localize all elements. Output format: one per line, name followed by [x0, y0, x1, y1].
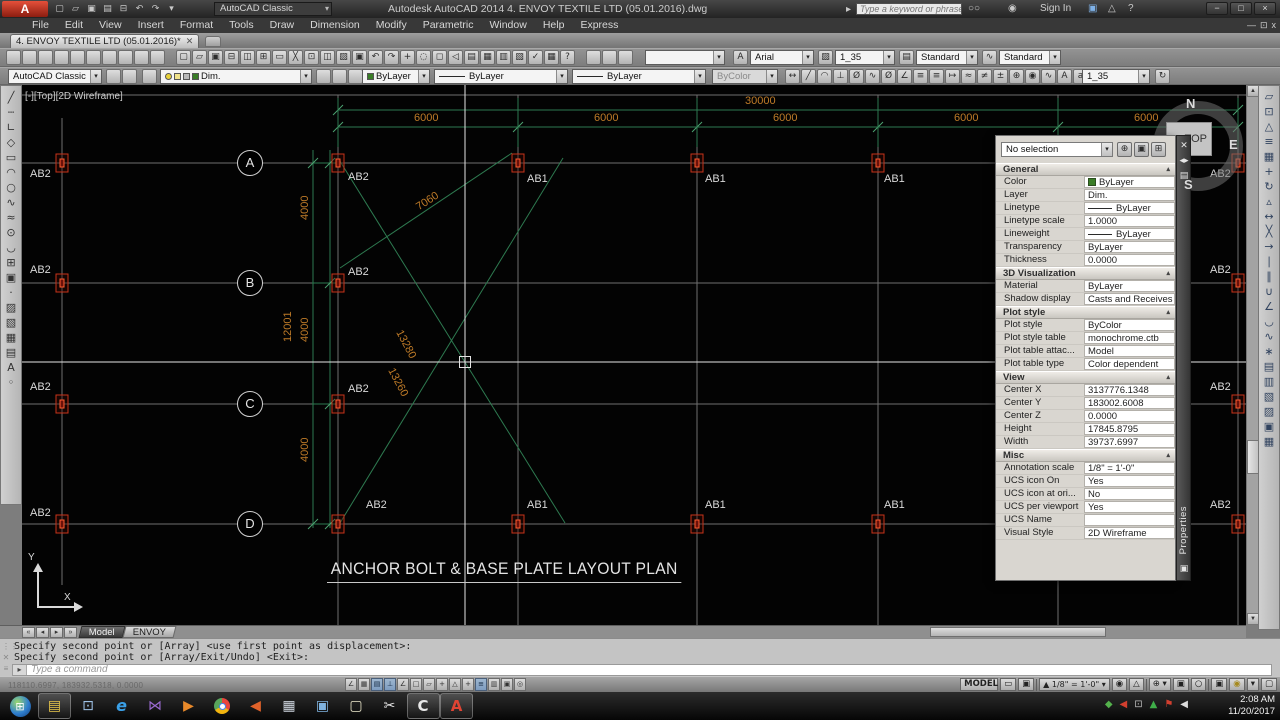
unlock-position-icon[interactable]	[150, 50, 165, 65]
workspace-combo[interactable]: AutoCAD Classic▾	[214, 2, 332, 16]
status-menu-icon[interactable]: ▾	[1247, 678, 1259, 691]
autocad-logo-icon[interactable]: A	[2, 1, 48, 17]
otrack-toggle[interactable]: +	[436, 678, 448, 691]
select-objects-icon[interactable]: ▣	[1134, 142, 1149, 157]
dim-jog-line-icon[interactable]: ∿	[982, 50, 997, 65]
trim-icon[interactable]: ╳	[1261, 224, 1277, 239]
search-input[interactable]: Type a keyword or phrase	[856, 3, 962, 15]
dim-angular-icon[interactable]: ∠	[897, 69, 912, 84]
flag-tray-icon[interactable]: ⚑	[1164, 698, 1173, 712]
property-value[interactable]: Model	[1084, 345, 1175, 357]
markup-icon[interactable]: ✓	[528, 50, 543, 65]
start-button[interactable]: ⊞	[5, 694, 35, 718]
viewport-controls[interactable]: [-][Top][2D Wireframe]	[25, 91, 123, 102]
viewport-poly-icon[interactable]	[602, 50, 617, 65]
dim-diameter-icon[interactable]: Ø	[881, 69, 896, 84]
collapse-icon[interactable]: ▴	[1166, 450, 1170, 462]
section-header-misc[interactable]: Misc▴	[996, 449, 1175, 462]
osnap-toggle[interactable]: □	[410, 678, 422, 691]
palette-autohide-icon[interactable]: ◂▸	[1178, 156, 1190, 166]
help-icon[interactable]: ?	[560, 50, 575, 65]
vertical-scroll-thumb[interactable]	[1247, 440, 1259, 474]
redo-icon[interactable]: ↷	[148, 2, 163, 16]
dwf-icon[interactable]: ▭	[272, 50, 287, 65]
section-header-view[interactable]: View▴	[996, 371, 1175, 384]
mirror-icon[interactable]: △	[1261, 119, 1277, 134]
infer-toggle[interactable]: ∠	[345, 678, 357, 691]
property-value[interactable]: Casts and Receives ...	[1084, 293, 1175, 305]
command-grip[interactable]: ⋮⋮✕≡	[2, 641, 10, 675]
undo-icon[interactable]: ↶	[368, 50, 383, 65]
menu-insert[interactable]: Insert	[130, 18, 172, 33]
compass-n[interactable]: N	[1186, 96, 1195, 111]
dyn-toggle[interactable]: +	[462, 678, 474, 691]
qnew-icon[interactable]: ▢	[52, 2, 67, 16]
circle-icon[interactable]: ○	[3, 180, 19, 195]
bolt-label: AB2	[348, 171, 369, 183]
dim-tolerance-icon[interactable]: ±	[993, 69, 1008, 84]
sign-in-link[interactable]: Sign In	[1040, 3, 1071, 14]
first-tab-icon[interactable]: «	[22, 627, 35, 638]
dim-center-mark-icon[interactable]: ⊕	[1009, 69, 1024, 84]
dim-style-combo[interactable]: 1_35▾	[1082, 69, 1150, 84]
menu-format[interactable]: Format	[172, 18, 221, 33]
update-tray-icon[interactable]: ▲	[1150, 698, 1158, 712]
quick-view-drawings-icon[interactable]: ▣	[1018, 678, 1034, 691]
sticky-notes-icon: ▢	[349, 696, 362, 716]
taskbar-calculator[interactable]: ▦	[273, 693, 306, 719]
line-icon[interactable]: ╱	[3, 90, 19, 105]
viewport-single-icon[interactable]	[586, 50, 601, 65]
preview-icon[interactable]: ◫	[240, 50, 255, 65]
property-label: Lineweight	[1002, 228, 1084, 240]
view-combo[interactable]: ▾	[645, 50, 725, 65]
hardware-acceleration-icon[interactable]: ◉	[1229, 678, 1244, 691]
property-row: LayerDim.	[996, 189, 1175, 202]
property-value[interactable]: ByLayer	[1084, 202, 1175, 214]
workspace-settings-icon[interactable]	[106, 69, 121, 84]
property-value[interactable]: ByLayer	[1084, 176, 1175, 188]
dim-vertical-label: 12001	[282, 311, 294, 342]
modify-toolbar: ▱⊡△≡▦+↻▵↔╳→∣∥∪∠◡∿∗▤▥▧▨▣▦	[1258, 85, 1280, 630]
open-icon[interactable]: ▱	[192, 50, 207, 65]
linetype-combo[interactable]: ByLayer▾	[434, 69, 568, 84]
layer-states-icon[interactable]	[348, 69, 363, 84]
maximize-button[interactable]: □	[1230, 2, 1252, 15]
dim-linear-icon[interactable]: ↔	[785, 69, 800, 84]
my-workspace-icon[interactable]	[122, 69, 137, 84]
dim-ordinate-icon[interactable]: ⊥	[833, 69, 848, 84]
erase-icon[interactable]: ▱	[1261, 89, 1277, 104]
menu-tools[interactable]: Tools	[221, 18, 262, 33]
dim-inspect-icon[interactable]: ◉	[1025, 69, 1040, 84]
sc-toggle[interactable]: ◎	[514, 678, 526, 691]
mtext-icon[interactable]: A	[733, 50, 748, 65]
save-icon[interactable]: ▣	[84, 2, 99, 16]
taskbar-chrome[interactable]	[206, 693, 239, 719]
anchor-bolt-symbol	[332, 274, 345, 293]
grid-toggle[interactable]: ▤	[371, 678, 383, 691]
property-label: Center Z	[1002, 410, 1084, 422]
save-as-icon[interactable]: ▤	[100, 2, 115, 16]
toolbar-group: ▢▱▣⊟◫⊞▭╳⊡◫▨▣↶↷+◌◻◁▤▦▥▧✓▦?	[176, 50, 575, 65]
ellipse-icon[interactable]: ⊙	[3, 225, 19, 240]
dim-update-tool-icon[interactable]	[54, 50, 69, 65]
tab-envoy[interactable]: ENVOY	[122, 626, 176, 638]
property-row: UCS icon at ori...No	[996, 488, 1175, 501]
scroll-down-icon[interactable]: ▼	[1247, 613, 1259, 625]
annotate-b-icon[interactable]	[86, 50, 101, 65]
taskbar-sticky-notes[interactable]: ▢	[340, 693, 373, 719]
mtext-icon[interactable]: A	[3, 360, 19, 375]
status-separator	[1208, 679, 1209, 691]
property-value[interactable]: 0.0000	[1084, 254, 1175, 266]
model-button[interactable]: MODEL	[960, 678, 998, 691]
layer-combo[interactable]: Dim.▾	[160, 69, 312, 84]
help-icon[interactable]: ?	[1128, 2, 1134, 16]
cad-standards-icon[interactable]	[38, 50, 53, 65]
property-value[interactable]: 0.0000	[1084, 410, 1175, 422]
lwt-toggle[interactable]: ≡	[475, 678, 487, 691]
taskbar-snipping-tool[interactable]: ✂	[373, 693, 406, 719]
dim-update-icon[interactable]: ↻	[1155, 69, 1170, 84]
send-under-icon[interactable]: ▨	[1261, 404, 1277, 419]
open-icon[interactable]: ▱	[68, 2, 83, 16]
prev-tab-icon[interactable]: ◂	[36, 627, 49, 638]
dim-continue-icon[interactable]: ↦	[945, 69, 960, 84]
anchor-bolt-symbol	[512, 154, 525, 173]
extend-icon[interactable]: →	[1261, 239, 1277, 254]
table-icon[interactable]: ▤	[3, 345, 19, 360]
menu-window[interactable]: Window	[481, 18, 534, 33]
menu-view[interactable]: View	[91, 18, 130, 33]
doc-minimize-icon[interactable]: —	[1247, 19, 1256, 32]
blend-curves-icon[interactable]: ∿	[1261, 329, 1277, 344]
annotation-autoscale-icon[interactable]: △	[1129, 678, 1144, 691]
copy-icon[interactable]: ⊡	[304, 50, 319, 65]
stretch-icon[interactable]: ↔	[1261, 209, 1277, 224]
zoom-window-icon[interactable]: ◻	[432, 50, 447, 65]
layer-translate-icon[interactable]	[22, 50, 37, 65]
taskbar-kmplayer[interactable]: ⋈	[139, 693, 172, 719]
file-tab-close-icon[interactable]: ✕	[186, 36, 194, 46]
qat-dropdown-icon[interactable]: ▾	[164, 2, 179, 16]
chamfer-icon[interactable]: ∠	[1261, 299, 1277, 314]
lock-position-icon[interactable]	[134, 50, 149, 65]
insert-block-icon[interactable]: ⊞	[3, 255, 19, 270]
annotate-a-icon[interactable]	[70, 50, 85, 65]
property-value[interactable]: Yes	[1084, 475, 1175, 487]
menu-dimension[interactable]: Dimension	[302, 18, 368, 33]
search-arrow-icon[interactable]: ▸	[846, 3, 851, 17]
rotate-icon[interactable]: ↻	[1261, 179, 1277, 194]
region-icon[interactable]: ▦	[3, 330, 19, 345]
spline-icon[interactable]: ≈	[3, 210, 19, 225]
lineweight-combo[interactable]: ByLayer▾	[572, 69, 706, 84]
table-style-combo[interactable]: Standard▾	[916, 50, 978, 65]
doc-close-icon[interactable]: x	[1272, 19, 1277, 32]
property-value[interactable]: 1.0000	[1084, 215, 1175, 227]
collapse-icon[interactable]: ▴	[1166, 307, 1170, 319]
ducs-toggle[interactable]: △	[449, 678, 461, 691]
zoom-previous-icon[interactable]: ◁	[448, 50, 463, 65]
tool-palettes-icon[interactable]: ▥	[496, 50, 511, 65]
dim-jog-line-icon[interactable]: ∿	[1041, 69, 1056, 84]
menu-file[interactable]: File	[24, 18, 57, 33]
break-icon[interactable]: ∥	[1261, 269, 1277, 284]
media-player-icon: ▶	[183, 696, 194, 716]
layer-properties-icon[interactable]	[142, 69, 157, 84]
make-object-layer-current-icon[interactable]	[316, 69, 331, 84]
add-selected-icon[interactable]: ◦	[3, 375, 19, 390]
revision-cloud-icon[interactable]: ∿	[3, 195, 19, 210]
volume-tray-icon[interactable]: ◀	[1180, 698, 1188, 712]
dim-jogged-icon[interactable]: ∿	[865, 69, 880, 84]
polar-toggle[interactable]: ∠	[397, 678, 409, 691]
isolate-objects-icon[interactable]: ○	[1191, 678, 1206, 691]
property-row: Thickness0.0000	[996, 254, 1175, 267]
taskbar-volume-app[interactable]: ◀	[239, 693, 272, 719]
polygon-icon[interactable]: ◇	[3, 135, 19, 150]
property-row: TransparencyByLayer	[996, 241, 1175, 254]
quick-view-layouts-icon[interactable]: ▭	[1000, 678, 1016, 691]
rectangle-icon[interactable]: ▭	[3, 150, 19, 165]
ucs-icon	[37, 572, 39, 608]
menu-draw[interactable]: Draw	[262, 18, 303, 33]
viewport-join-icon[interactable]	[618, 50, 633, 65]
dim-edit-icon[interactable]: A	[1057, 69, 1072, 84]
remote-viewer-icon: ⊡	[82, 696, 94, 716]
send-to-back-icon[interactable]: ▥	[1261, 374, 1277, 389]
property-value[interactable]: 3137776.1348	[1084, 384, 1175, 396]
match-properties-icon[interactable]: ▨	[336, 50, 351, 65]
property-value[interactable]: Dim.	[1084, 189, 1175, 201]
fillet-icon[interactable]: ◡	[1261, 314, 1277, 329]
arc-icon[interactable]: ◠	[3, 165, 19, 180]
property-value[interactable]	[1084, 514, 1175, 526]
collapse-icon[interactable]: ▴	[1166, 372, 1170, 384]
tpy-toggle[interactable]: ▥	[488, 678, 500, 691]
property-value[interactable]: ByLayer	[1084, 280, 1175, 292]
dim-space-icon[interactable]: ≈	[961, 69, 976, 84]
rotate-view-icon[interactable]	[102, 50, 117, 65]
dim-aligned-icon[interactable]: ╱	[801, 69, 816, 84]
block-editor-icon[interactable]: ▣	[352, 50, 367, 65]
point-icon[interactable]: ·	[3, 285, 19, 300]
collapse-icon[interactable]: ▴	[1166, 164, 1170, 176]
qp-toggle[interactable]: ▣	[501, 678, 513, 691]
property-value[interactable]: Color dependent	[1084, 358, 1175, 370]
layer-previous-icon[interactable]	[332, 69, 347, 84]
property-value[interactable]: ByLayer	[1084, 241, 1175, 253]
toolbar-group: ↻	[1155, 69, 1170, 84]
close-button[interactable]: ×	[1254, 2, 1276, 15]
toolbar-lock-icon[interactable]: ▣	[1173, 678, 1189, 691]
named-views-icon[interactable]	[118, 50, 133, 65]
property-value[interactable]: 17845.8795	[1084, 423, 1175, 435]
property-value[interactable]: ByLayer	[1084, 228, 1175, 240]
menu-edit[interactable]: Edit	[57, 18, 91, 33]
font-combo[interactable]: Arial▾	[750, 50, 814, 65]
annotation-scale-button[interactable]: ▲ 1/8" = 1'-0" ▾	[1039, 678, 1110, 691]
qnew-icon[interactable]: ▢	[176, 50, 191, 65]
table-icon[interactable]: ▤	[899, 50, 914, 65]
explode-icon[interactable]: ∗	[1261, 344, 1277, 359]
autocad-window: A ▢▱▣▤⊟↶↷▾ AutoCAD Classic▾ Autodesk Aut…	[0, 0, 1280, 720]
workspace-switcher-combo[interactable]: AutoCAD Classic▾	[8, 69, 102, 84]
property-value[interactable]: 39737.6997	[1084, 436, 1175, 448]
properties-icon[interactable]: ▤	[464, 50, 479, 65]
pan-icon[interactable]: +	[400, 50, 415, 65]
plot-icon[interactable]: ⊟	[224, 50, 239, 65]
make-block-icon[interactable]: ▣	[3, 270, 19, 285]
compass-s[interactable]: S	[1184, 177, 1193, 192]
taskbar-camtasia[interactable]: C	[407, 693, 440, 719]
menu-help[interactable]: Help	[535, 18, 573, 33]
toolbar-group	[6, 50, 165, 65]
section-header-general[interactable]: General▴	[996, 163, 1175, 176]
scroll-up-icon[interactable]: ▲	[1247, 85, 1259, 97]
construction-line-icon[interactable]: ┄	[3, 105, 19, 120]
minimize-button[interactable]: −	[1206, 2, 1228, 15]
paste-icon[interactable]: ◫	[320, 50, 335, 65]
bring-to-front-icon[interactable]: ▤	[1261, 359, 1277, 374]
property-value[interactable]: ByColor	[1084, 319, 1175, 331]
join-icon[interactable]: ∪	[1261, 284, 1277, 299]
osnap-3d-toggle[interactable]: ▱	[423, 678, 435, 691]
publish-icon[interactable]: ⊞	[256, 50, 271, 65]
array-icon[interactable]: ▦	[1261, 149, 1277, 164]
palette-title-strip: ✕ ◂▸ ▤ Properties ▣	[1176, 135, 1191, 581]
new-tab-button[interactable]	[205, 36, 221, 47]
ortho-toggle[interactable]: ⊥	[384, 678, 396, 691]
next-tab-icon[interactable]: ▸	[50, 627, 63, 638]
compass-e[interactable]: E	[1229, 137, 1238, 152]
redo-icon[interactable]: ↷	[384, 50, 399, 65]
copy-icon[interactable]: ⊡	[1261, 104, 1277, 119]
property-value[interactable]: 2D Wireframe	[1084, 527, 1175, 539]
bolt-label: AB2	[366, 499, 387, 511]
property-label: Height	[1002, 423, 1084, 435]
selection-combo[interactable]: No selection▾	[1001, 142, 1113, 157]
move-icon[interactable]: +	[1261, 164, 1277, 179]
design-center-icon[interactable]: ▦	[480, 50, 495, 65]
palette-close-icon[interactable]: ✕	[1178, 141, 1190, 151]
snap-toggle[interactable]: ▦	[358, 678, 370, 691]
zoom-realtime-icon[interactable]: ◌	[416, 50, 431, 65]
match-properties-icon[interactable]: ▨	[818, 50, 833, 65]
taskbar-internet-explorer[interactable]: e	[105, 693, 138, 719]
break-at-point-icon[interactable]: ∣	[1261, 254, 1277, 269]
property-row: LinetypeByLayer	[996, 202, 1175, 215]
display-tray-icon[interactable]: ⊡	[1134, 698, 1142, 712]
property-value[interactable]: monochrome.ctb	[1084, 332, 1175, 344]
quick-select-icon[interactable]: ⊕	[1117, 142, 1132, 157]
tab-model[interactable]: Model	[79, 626, 126, 638]
dim-break-icon[interactable]: ≠	[977, 69, 992, 84]
clean-screen-button[interactable]: ▢	[1261, 678, 1277, 691]
kmplayer-tray-icon[interactable]: ◀	[1120, 698, 1128, 712]
last-tab-icon[interactable]: »	[64, 627, 77, 638]
doc-restore-icon[interactable]: ⊡	[1260, 19, 1268, 32]
ucs-icon	[38, 606, 76, 608]
anchor-bolt-symbol	[1232, 274, 1245, 293]
standards-check-icon[interactable]	[6, 50, 21, 65]
grid-bubble-D: D	[237, 511, 263, 537]
exchange-status-icon[interactable]: ▣	[1211, 678, 1227, 691]
bring-above-icon[interactable]: ▧	[1261, 389, 1277, 404]
polyline-icon[interactable]: ∟	[3, 120, 19, 135]
menu-express[interactable]: Express	[572, 18, 626, 33]
dim-arc-length-icon[interactable]: ◠	[817, 69, 832, 84]
search-icon[interactable]: ○○	[968, 2, 980, 16]
plot-icon[interactable]: ⊟	[116, 2, 131, 16]
collapse-icon[interactable]: ▴	[1166, 268, 1170, 280]
property-row: Center Z0.0000	[996, 410, 1175, 423]
cut-icon[interactable]: ╳	[288, 50, 303, 65]
save-icon[interactable]: ▣	[208, 50, 223, 65]
scale-icon[interactable]: ▵	[1261, 194, 1277, 209]
menu-parametric[interactable]: Parametric	[415, 18, 482, 33]
annotation-visibility-icon[interactable]: ◉	[1112, 678, 1127, 691]
taskbar-photo-viewer[interactable]: ▣	[306, 693, 339, 719]
menu-modify[interactable]: Modify	[368, 18, 415, 33]
lineweight-sample	[577, 76, 603, 77]
quickcalc-icon[interactable]: ▦	[544, 50, 559, 65]
property-label: Plot style table	[1002, 332, 1084, 344]
bolt-label: AB1	[527, 173, 548, 185]
property-value[interactable]: Yes	[1084, 501, 1175, 513]
vertical-scrollbar[interactable]: ▲ ▼	[1246, 85, 1258, 625]
toggle-pickadd-icon[interactable]: ⊞	[1151, 142, 1166, 157]
horizontal-scroll-thumb[interactable]	[930, 627, 1106, 637]
ellipse-arc-icon[interactable]: ◡	[3, 240, 19, 255]
draworder-annotations-icon[interactable]: ▣	[1261, 419, 1277, 434]
hatch-icon[interactable]: ▨	[3, 300, 19, 315]
dim-radius-icon[interactable]: Ø	[849, 69, 864, 84]
undo-icon[interactable]: ↶	[132, 2, 147, 16]
taskbar-autocad[interactable]: A	[440, 693, 473, 719]
offset-icon[interactable]: ≡	[1261, 134, 1277, 149]
draworder-hatch-icon[interactable]: ▦	[1261, 434, 1277, 449]
plot-style-combo[interactable]: ByColor▾	[712, 69, 778, 84]
property-value[interactable]: 1/8" = 1'-0"	[1084, 462, 1175, 474]
workspace-switching-icon[interactable]: ⊕ ▾	[1149, 678, 1171, 691]
text-style-combo[interactable]: 1_35▾	[835, 50, 895, 65]
autodesk360-icon[interactable]: △	[1108, 2, 1116, 16]
taskbar-clock[interactable]: 2:08 AM 11/20/2017	[1228, 694, 1275, 718]
taskbar-file-explorer[interactable]: ▤	[38, 693, 71, 719]
section-header-plot-style[interactable]: Plot style▴	[996, 306, 1175, 319]
property-value[interactable]: No	[1084, 488, 1175, 500]
command-input[interactable]: ▸Type a command	[12, 664, 1272, 676]
color-combo[interactable]: ByLayer▾	[362, 69, 430, 84]
gradient-icon[interactable]: ▧	[3, 315, 19, 330]
exchange-x-icon[interactable]: ▣	[1088, 2, 1097, 16]
dim-bay-label: 6000	[414, 112, 438, 124]
dim-quick-icon[interactable]: ≡	[913, 69, 928, 84]
taskbar-media-player[interactable]: ▶	[172, 693, 205, 719]
property-row: Width39737.6997	[996, 436, 1175, 449]
section-header-3d-visualization[interactable]: 3D Visualization▴	[996, 267, 1175, 280]
taskbar-remote-viewer[interactable]: ⊡	[72, 693, 105, 719]
multileader-style-combo[interactable]: Standard▾	[999, 50, 1061, 65]
safely-remove-icon[interactable]: ◆	[1105, 698, 1113, 712]
dim-baseline-icon[interactable]: ≡	[929, 69, 944, 84]
property-value[interactable]: 183002.6008	[1084, 397, 1175, 409]
file-tab[interactable]: 4. ENVOY TEXTILE LTD (05.01.2016)*✕	[10, 34, 199, 48]
sheet-set-manager-icon[interactable]: ▧	[512, 50, 527, 65]
